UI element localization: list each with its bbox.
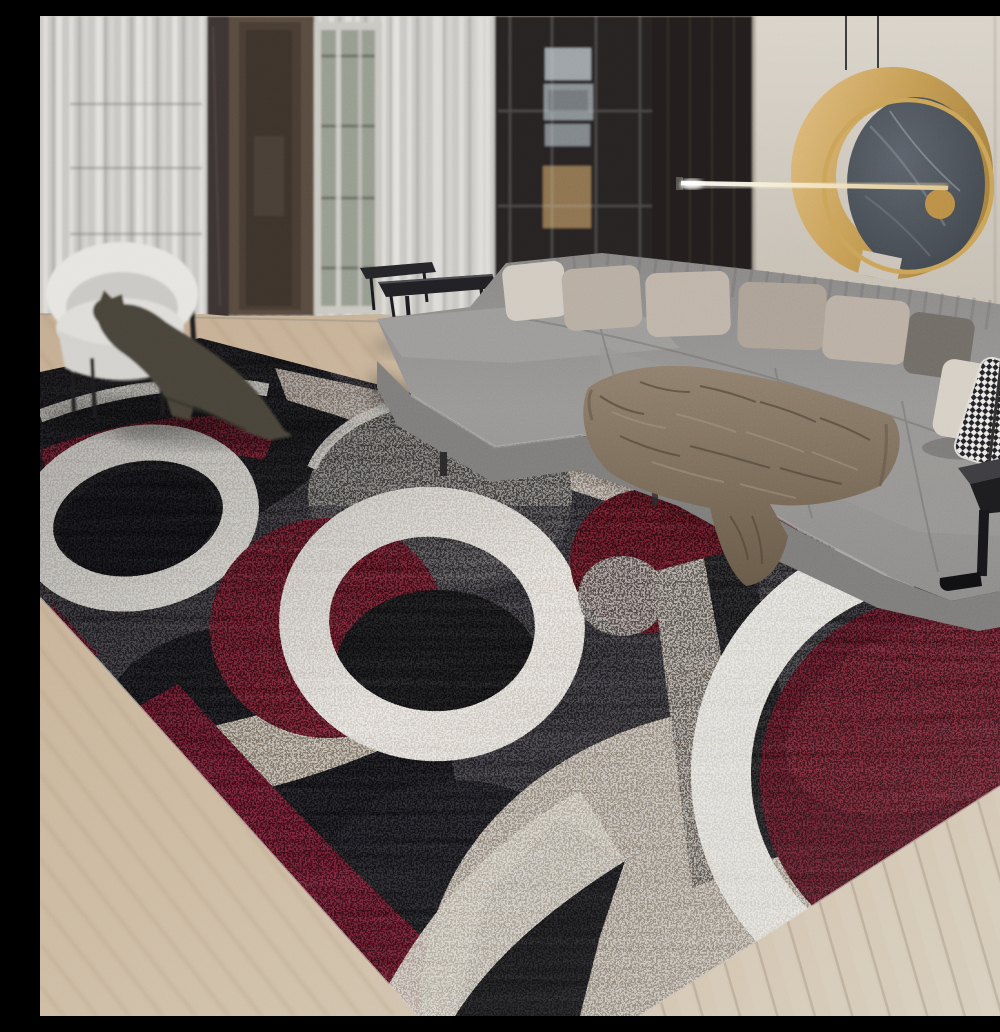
- photo-canvas: Photograph of a modern living room stage…: [40, 16, 1000, 1016]
- photo-grain: [40, 16, 1000, 1016]
- living-room-photo: Photograph of a modern living room stage…: [40, 16, 1000, 1016]
